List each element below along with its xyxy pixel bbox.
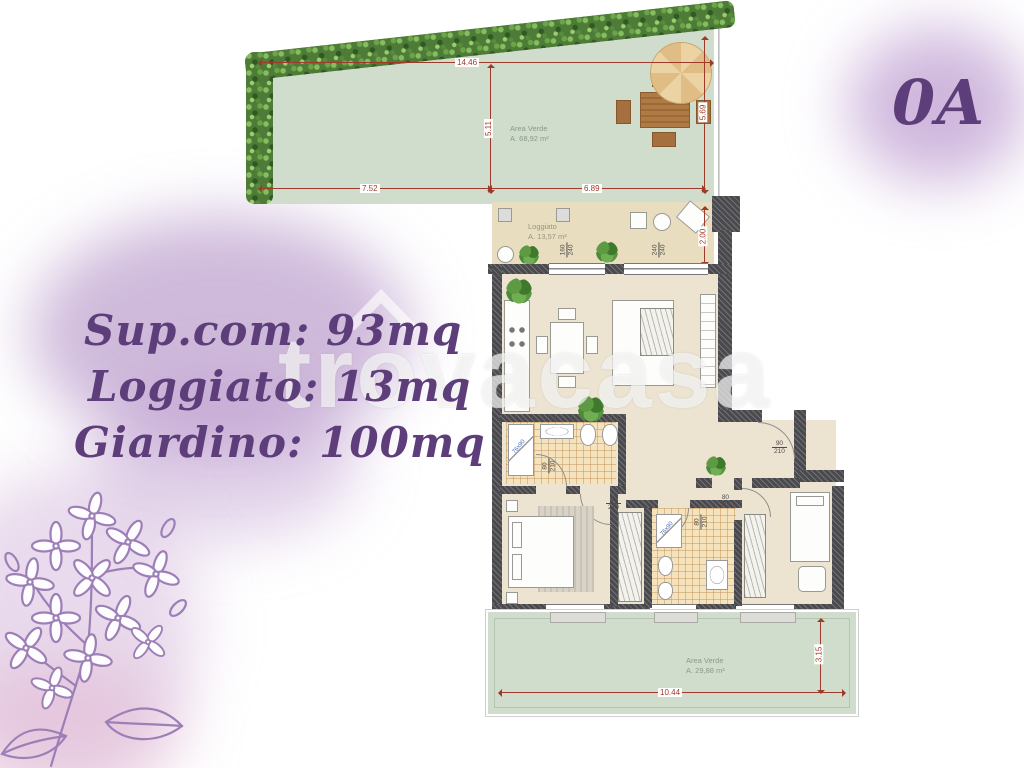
opening-width: 160: [559, 245, 566, 256]
bench-bottom: [652, 132, 676, 147]
loggia-plant-2: [596, 241, 618, 263]
opening-width: 80: [541, 462, 548, 469]
opening-height: 210: [606, 503, 621, 511]
garden-step-1: [550, 612, 606, 623]
loggia-label: Loggiato A. 13,57 m²: [528, 222, 567, 242]
dimension-label: 2.00: [698, 227, 707, 247]
bedroom2-wardrobe: [744, 514, 766, 598]
bath2-bidet: [658, 582, 673, 600]
spec-loggiato: Loggiato: 13mq: [88, 362, 471, 411]
wall-right-bedroom2: [832, 486, 844, 616]
loggia-white-planter: [497, 246, 514, 263]
label-window-top-1: 160 240: [559, 243, 575, 258]
opening-height: 210: [772, 447, 787, 455]
opening-height: 240: [567, 243, 575, 258]
window-top-1: [549, 263, 605, 275]
loggia-plant-1: [519, 245, 539, 265]
area-verde-bottom-name: Area Verde: [686, 656, 725, 666]
label-door-entry: 90 210: [772, 440, 787, 456]
wall-bath1-bottom-b: [566, 486, 580, 494]
area-verde-top-area: A. 68,92 m²: [510, 134, 549, 144]
floorplan-canvas: 14.46 5.11 5.69 7.52 6.89 Area Verde A. …: [0, 0, 1024, 768]
corridor-closet: [618, 512, 642, 602]
area-verde-top-label: Area Verde A. 68,92 m²: [510, 124, 549, 144]
garden-bottom: Area Verde A. 29,88 m² 10.44 3.15: [486, 610, 858, 716]
dimension-garden-top-bottom-left: 7.52: [260, 188, 490, 189]
loggia-area: A. 13,57 m²: [528, 232, 567, 242]
dimension-label: 7.52: [360, 184, 380, 193]
area-verde-bottom-area: A. 29,88 m²: [686, 666, 725, 676]
garden-step-3: [740, 612, 796, 623]
bedroom1-nightstand-top: [506, 500, 518, 512]
wall-bath2-left: [644, 508, 652, 608]
dimension-garden-bottom-height: 3.15: [820, 620, 821, 692]
label-door-bedroom1: 80 210: [606, 496, 621, 512]
opening-width: 240: [651, 245, 658, 256]
dimension-label: 5.69: [698, 103, 707, 123]
opening-height: 210: [718, 501, 733, 509]
label-window-top-2: 240 240: [651, 243, 667, 258]
dimension-label: 3.15: [814, 645, 823, 665]
flower-illustration: [0, 486, 208, 768]
bath2-toilet: [658, 556, 673, 576]
wall-bath2-top-right: [690, 500, 742, 508]
area-verde-bottom-label: Area Verde A. 29,88 m²: [686, 656, 725, 676]
bedroom1-pillow-2: [512, 554, 522, 580]
dimension-garden-bottom-width: 10.44: [500, 692, 844, 693]
dimension-garden-top-right: 5.69: [704, 38, 705, 192]
loggia-name: Loggiato: [528, 222, 567, 232]
label-door-bath1: 80 210: [541, 459, 557, 474]
hall-plant: [706, 456, 726, 476]
label-door-bedroom2: 80 210: [718, 494, 733, 510]
unit-label: 0A: [892, 66, 985, 139]
bedroom1-pillow-1: [512, 522, 522, 548]
wall-loggia-corner-block: [712, 196, 740, 232]
loggia-lounge-chair-2: [556, 208, 570, 222]
dimension-label: 10.44: [658, 688, 682, 697]
opening-height: 210: [549, 459, 557, 474]
wall-hall-bottom-right: [752, 478, 800, 488]
loggia-lounge-chair-1: [498, 208, 512, 222]
dimension-garden-top-width: 14.46: [260, 62, 712, 63]
label-door-bath2: 80 210: [693, 515, 709, 530]
living-plant-1: [506, 278, 532, 304]
dimension-garden-top-bottom-right: 6.89: [490, 188, 704, 189]
spec-giardino: Giardino: 100mq: [74, 418, 486, 467]
opening-width: 80: [610, 496, 617, 503]
garden-step-2: [654, 612, 698, 623]
dimension-loggia-depth: 2.00: [704, 208, 705, 264]
spec-supcom: Sup.com: 93mq: [84, 306, 462, 355]
opening-width: 90: [776, 440, 783, 447]
garden-top-fence: [714, 18, 719, 204]
bedroom1-nightstand-bottom: [506, 592, 518, 604]
bedroom2-armchair: [798, 566, 826, 592]
dimension-garden-top-mid: 5.11: [490, 66, 491, 192]
opening-width: 80: [722, 494, 729, 501]
area-verde-top-name: Area Verde: [510, 124, 549, 134]
garden-top: 14.46 5.11 5.69 7.52 6.89 Area Verde A. …: [248, 6, 726, 206]
wall-entry-step-vertical: [794, 410, 806, 478]
wall-entry-step-horizontal: [794, 470, 844, 482]
loggia-square-table: [630, 212, 647, 229]
dimension-label: 14.46: [455, 58, 479, 67]
window-top-2: [624, 263, 708, 275]
umbrella-icon: [650, 42, 712, 104]
loggia-round-table: [653, 213, 671, 231]
opening-height: 210: [701, 515, 709, 530]
hedge-left: [246, 52, 273, 204]
opening-width: 80: [693, 518, 700, 525]
dimension-label: 5.11: [484, 119, 493, 138]
bench-left: [616, 100, 631, 124]
wall-bath1-bottom-a: [500, 486, 536, 494]
dimension-label: 6.89: [582, 184, 602, 193]
bath2-sink: [706, 560, 728, 590]
wall-bedroom2-left-upper: [734, 478, 742, 490]
wall-bedroom2-left-lower: [734, 520, 742, 606]
wall-hall-bottom-left: [696, 478, 712, 488]
wall-bath2-top-left: [626, 500, 658, 508]
opening-height: 240: [659, 243, 667, 258]
bedroom2-pillow: [796, 496, 824, 506]
